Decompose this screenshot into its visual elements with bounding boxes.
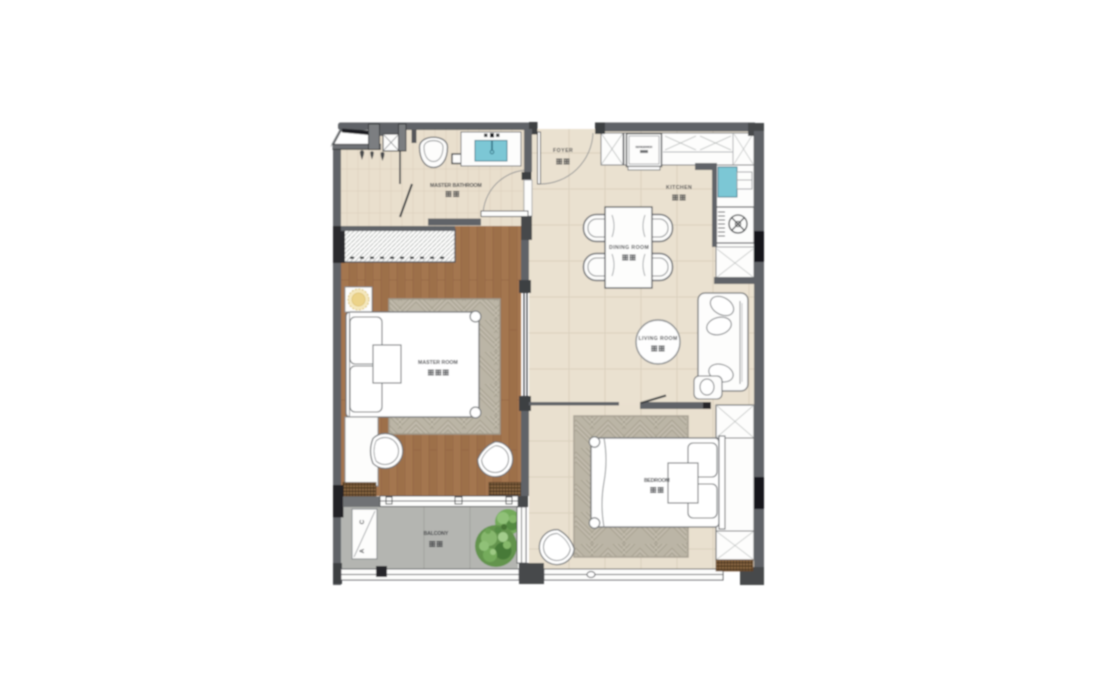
svg-text:DINING ROOM: DINING ROOM: [609, 245, 649, 251]
svg-text:BEDROOM: BEDROOM: [644, 478, 670, 484]
svg-text:REFRIGERATOR: REFRIGERATOR: [636, 145, 653, 149]
svg-text:MASTER ROOM: MASTER ROOM: [418, 360, 458, 366]
svg-text:C: C: [359, 519, 366, 524]
svg-text:A: A: [359, 548, 366, 553]
svg-text:MASTER BATHROOM: MASTER BATHROOM: [430, 183, 482, 189]
svg-text:LIVING ROOM: LIVING ROOM: [639, 336, 678, 342]
svg-text:BALCONY: BALCONY: [424, 531, 449, 537]
svg-text:KITCHEN: KITCHEN: [666, 185, 692, 191]
svg-text:FOYER: FOYER: [553, 148, 573, 154]
